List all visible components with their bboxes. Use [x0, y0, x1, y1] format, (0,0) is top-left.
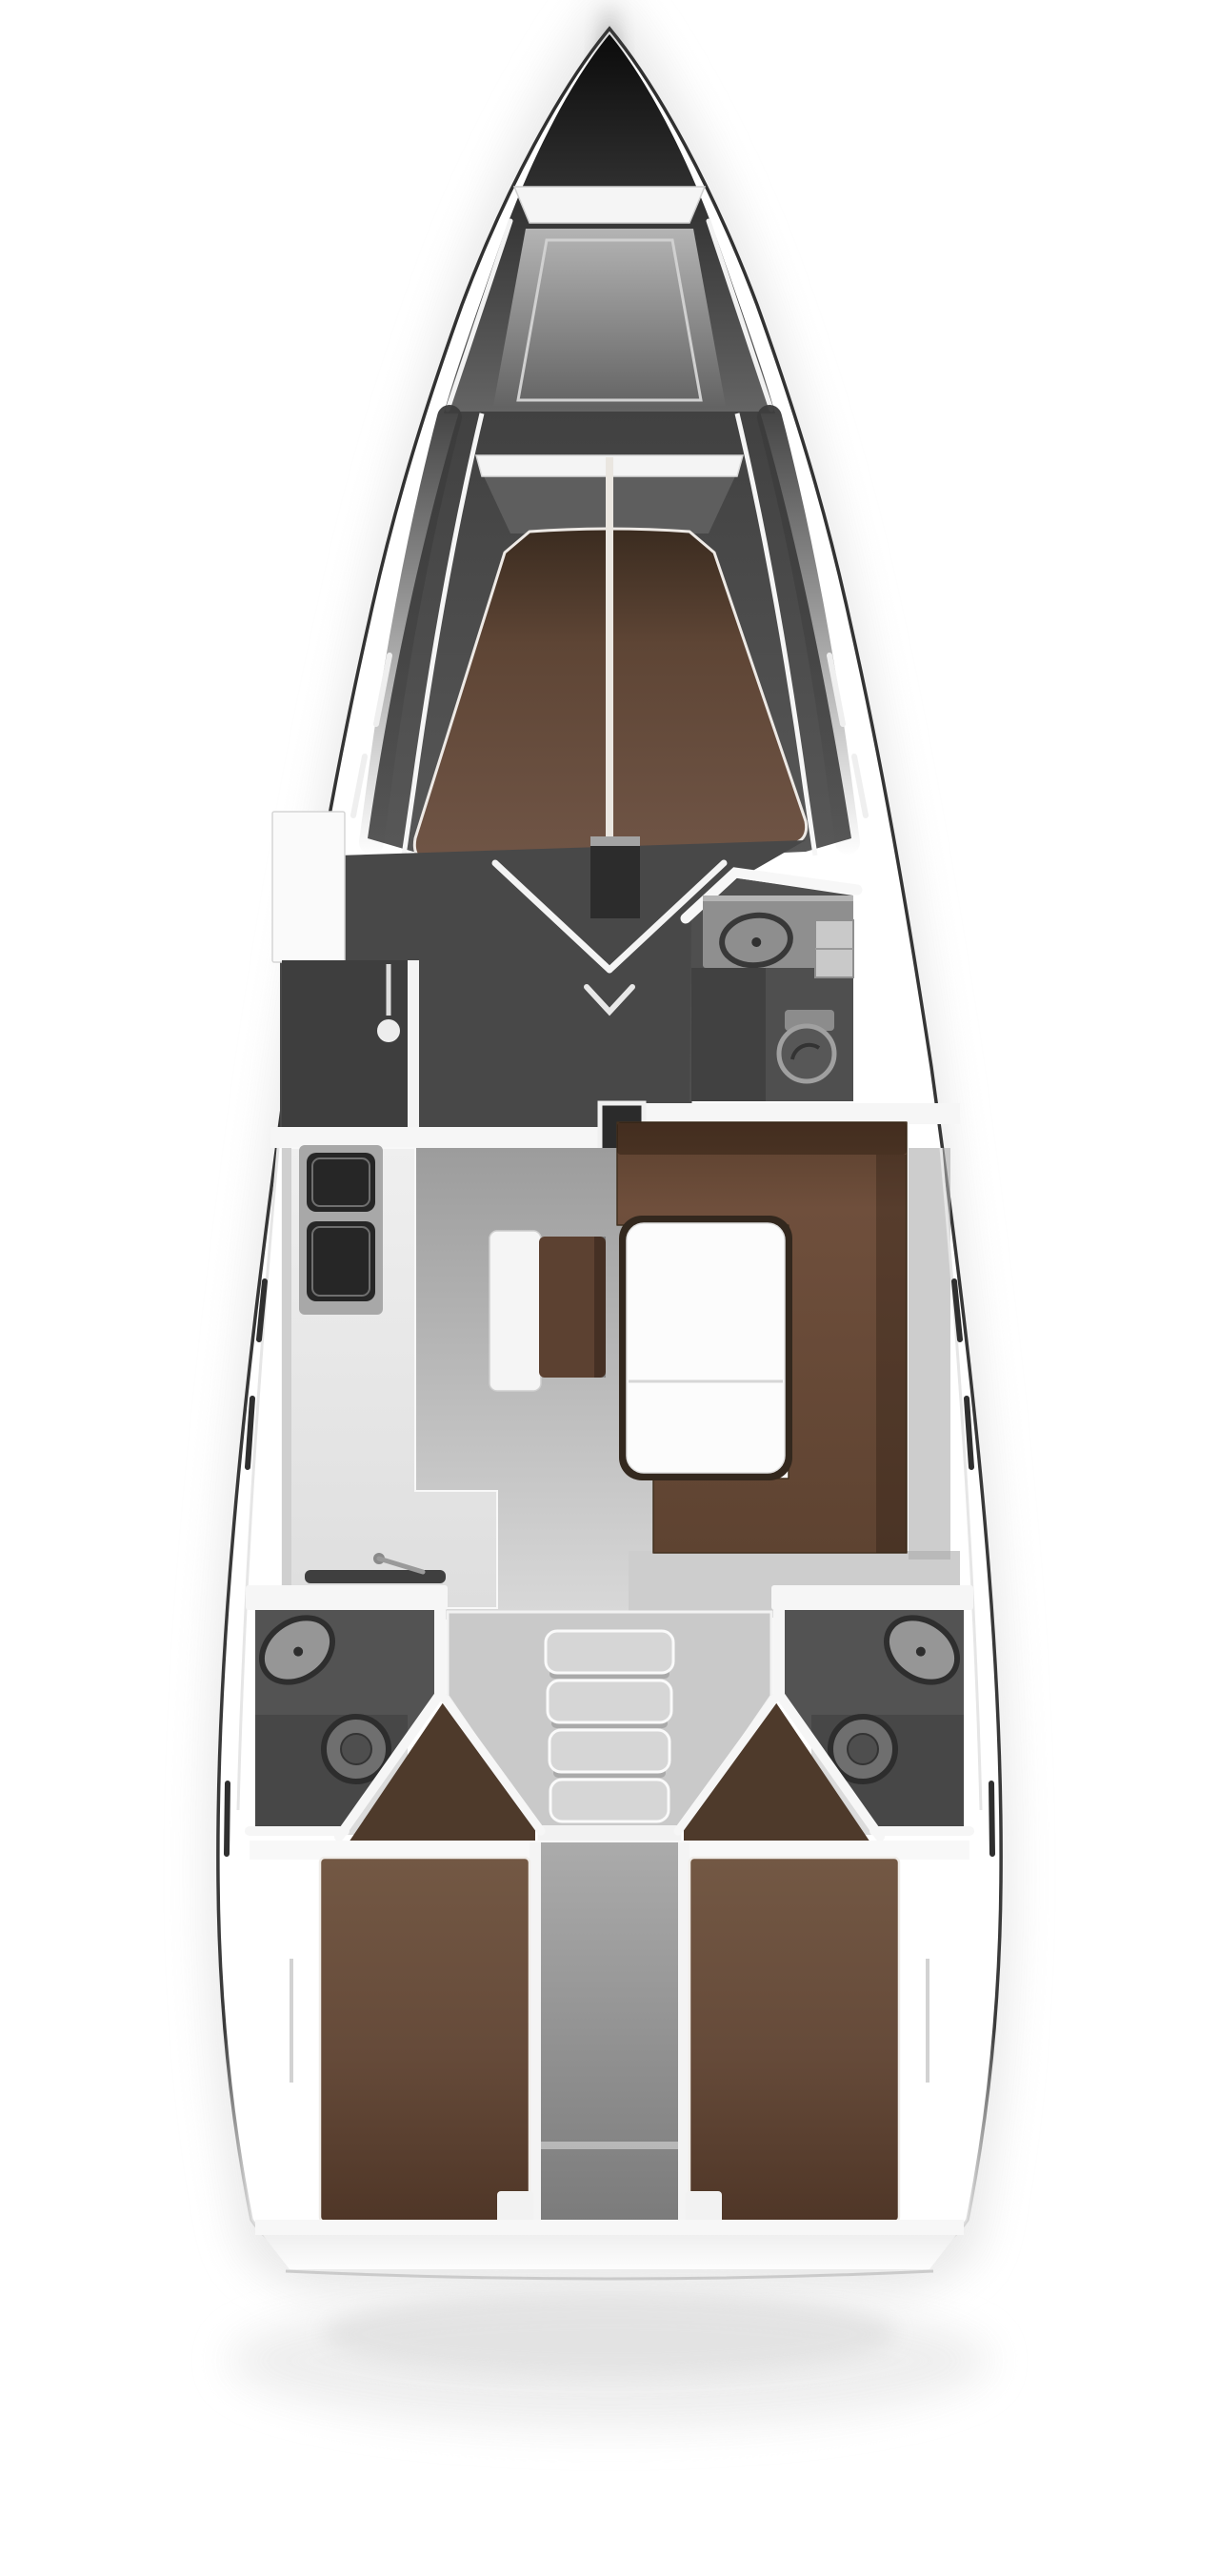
- toilet-icon-aft-port: [324, 1717, 389, 1781]
- vanity-counter-highlight: [703, 896, 853, 901]
- yacht-floor-plan-stage: [0, 0, 1219, 2576]
- corridor-wall-starboard: [678, 1842, 689, 2222]
- anchor-locker: [493, 229, 726, 406]
- wardrobe-port: [272, 812, 345, 962]
- step-1: [546, 1631, 673, 1673]
- table-top: [627, 1223, 785, 1473]
- step-landing: [539, 1825, 680, 1842]
- galley-counter-edge: [282, 1148, 291, 1608]
- yacht-floor-plan: [0, 0, 1219, 2576]
- step-3: [550, 1730, 669, 1772]
- corridor-cross-line: [541, 2142, 678, 2149]
- toilet-icon-aft-starboard: [830, 1717, 895, 1781]
- bulkhead-port-band: [270, 1127, 632, 1148]
- settee-backrest-side: [876, 1155, 907, 1553]
- step-2: [548, 1680, 671, 1722]
- locker-divider-wall: [408, 960, 419, 1130]
- stove-icon: [299, 1145, 383, 1315]
- aft-cabins: [250, 1841, 969, 2224]
- starboard-shelf: [909, 1148, 950, 1560]
- hull-window-port-5: [227, 1783, 228, 1854]
- aft-berth-starboard: [689, 1858, 899, 2222]
- settee-backrest-top: [617, 1122, 907, 1155]
- engine-corridor: [539, 1842, 680, 2222]
- saloon-table: [619, 1216, 792, 1480]
- companionway-steps: [539, 1631, 680, 1842]
- berth-notch-port: [497, 2191, 533, 2224]
- transom-platform: [263, 2235, 956, 2269]
- corridor-wall-port: [530, 1842, 541, 2222]
- berth-center-seam: [606, 457, 613, 855]
- forward-head: [686, 873, 857, 1101]
- aft-head-starboard-forward-wall: [771, 1585, 973, 1610]
- step-4: [550, 1780, 669, 1821]
- stern-drop-shadow: [324, 2292, 895, 2376]
- mast-post: [590, 836, 640, 918]
- berth-notch-starboard: [686, 2191, 722, 2224]
- toilet-icon-forward: [779, 1010, 834, 1081]
- forward-cabin: [368, 412, 851, 860]
- stern-bulkhead: [255, 2220, 964, 2235]
- aft-berth-port: [320, 1858, 530, 2222]
- hull-window-starboard-5: [991, 1783, 992, 1854]
- bulkhead-starboard-band: [629, 1103, 960, 1124]
- head-lower-cabinet: [691, 968, 766, 1101]
- windlass-plate: [514, 187, 705, 223]
- locker-line-port: [290, 1959, 293, 2083]
- aft-head-port-forward-wall: [246, 1585, 448, 1610]
- bench-white-seat: [490, 1231, 541, 1391]
- locker-line-starboard: [926, 1959, 929, 2083]
- vanity-cabinet: [815, 920, 853, 977]
- center-bench: [490, 1231, 606, 1391]
- bench-brown-shade: [594, 1237, 606, 1378]
